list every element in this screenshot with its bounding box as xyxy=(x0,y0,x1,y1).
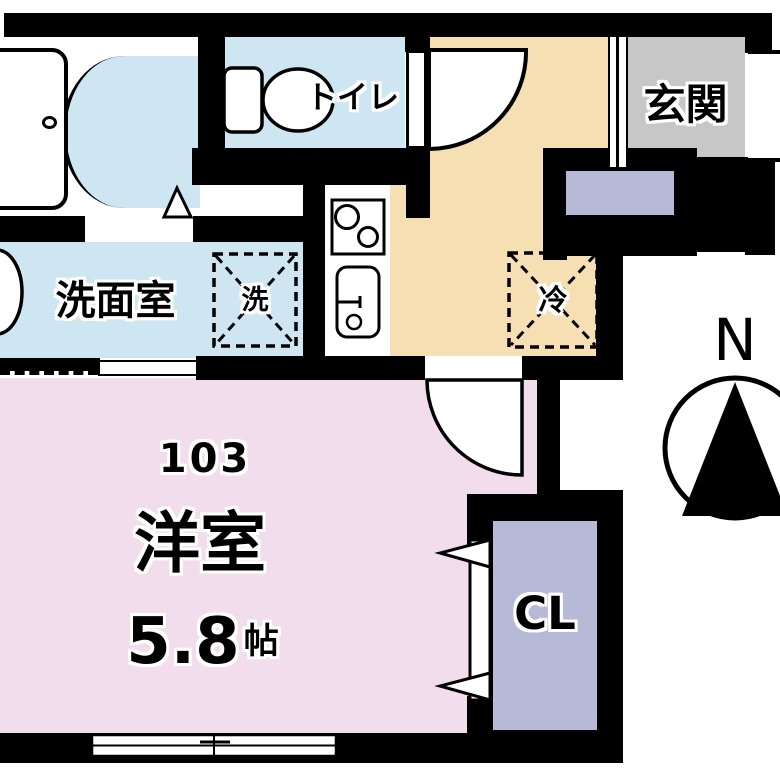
washroom-label: 洗面室 xyxy=(18,274,213,328)
wall xyxy=(563,148,697,170)
entry-step xyxy=(608,37,628,167)
wall xyxy=(196,356,308,380)
floor-plan: トイレ 玄関 洗面室 洗 冷 103 洋室 5.8帖 CL N xyxy=(0,0,780,771)
room-door-arc xyxy=(425,378,525,478)
main-door-opening xyxy=(425,356,522,380)
washroom-sliding-door xyxy=(98,360,198,376)
shoe-cabinet xyxy=(563,168,677,218)
entrance-door-arc xyxy=(427,48,529,154)
sink-icon xyxy=(334,264,382,340)
bathtub-icon xyxy=(0,48,68,210)
closet-label: CL xyxy=(495,584,595,642)
room-size-value: 5.8 xyxy=(126,610,239,674)
entry-label: 玄関 xyxy=(626,78,745,132)
room-size-label: 5.8帖 xyxy=(85,598,320,686)
compass-icon xyxy=(655,372,780,524)
front-door-opening xyxy=(748,50,780,162)
bathtub-drain xyxy=(42,116,57,129)
wall xyxy=(598,494,623,756)
wall xyxy=(745,13,772,53)
toilet-label: トイレ xyxy=(295,76,410,120)
refrigerator-label: 冷 xyxy=(523,281,583,319)
wall xyxy=(303,148,325,380)
sliding-door-track xyxy=(0,370,98,376)
closet-door xyxy=(434,536,494,704)
wall xyxy=(406,148,430,218)
wall xyxy=(537,378,560,494)
room-type-label: 洋室 xyxy=(90,498,310,590)
room-number: 103 xyxy=(125,433,285,485)
compass-north-label: N xyxy=(700,308,770,372)
washing-machine-label: 洗 xyxy=(225,282,285,318)
stove-icon xyxy=(330,198,386,256)
wall xyxy=(4,13,767,37)
bath-door-marker xyxy=(160,184,196,220)
room-size-unit: 帖 xyxy=(244,624,279,659)
window-icon xyxy=(90,733,340,759)
